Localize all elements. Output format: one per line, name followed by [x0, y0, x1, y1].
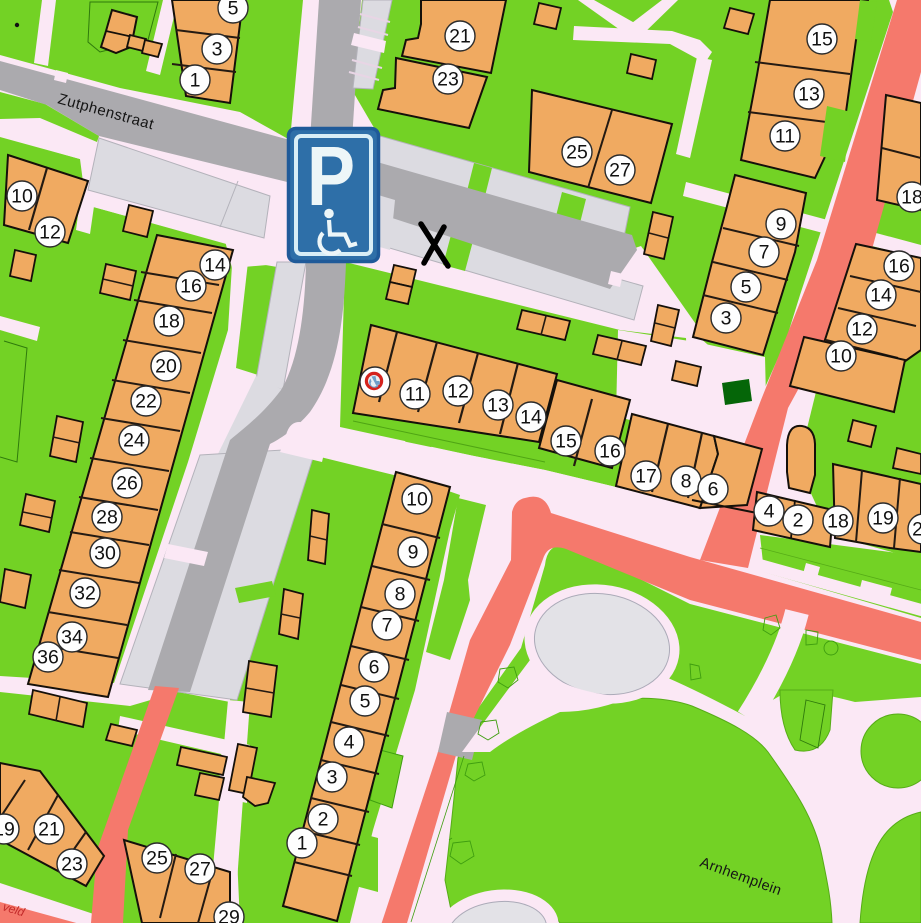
- svg-text:20: 20: [912, 519, 921, 541]
- svg-text:2: 2: [793, 510, 804, 532]
- svg-text:10: 10: [11, 186, 33, 208]
- svg-text:14: 14: [204, 255, 226, 277]
- svg-text:16: 16: [180, 276, 202, 298]
- svg-text:21: 21: [38, 819, 60, 841]
- svg-text:2: 2: [318, 809, 329, 831]
- svg-text:11: 11: [405, 384, 425, 406]
- svg-text:8: 8: [395, 584, 406, 606]
- svg-text:13: 13: [798, 84, 820, 106]
- svg-text:7: 7: [382, 615, 393, 637]
- svg-text:4: 4: [764, 501, 775, 523]
- svg-text:23: 23: [61, 854, 83, 876]
- svg-text:11: 11: [775, 126, 795, 148]
- svg-text:32: 32: [74, 583, 96, 605]
- svg-text:27: 27: [609, 160, 631, 182]
- svg-text:3: 3: [327, 767, 338, 789]
- svg-text:P: P: [307, 129, 355, 223]
- svg-text:5: 5: [741, 277, 752, 299]
- svg-text:12: 12: [39, 222, 61, 244]
- svg-text:19: 19: [0, 819, 15, 841]
- svg-text:15: 15: [555, 431, 577, 453]
- svg-text:12: 12: [851, 319, 873, 341]
- svg-text:13: 13: [487, 395, 509, 417]
- svg-text:18: 18: [158, 311, 180, 333]
- svg-text:6: 6: [708, 479, 719, 501]
- svg-text:7: 7: [759, 242, 770, 264]
- svg-text:17: 17: [635, 466, 657, 488]
- svg-text:23: 23: [437, 69, 459, 91]
- svg-text:21: 21: [449, 26, 471, 48]
- svg-text:14: 14: [520, 407, 542, 429]
- svg-text:24: 24: [123, 430, 145, 452]
- svg-text:1: 1: [190, 70, 201, 92]
- svg-text:5: 5: [360, 691, 371, 713]
- svg-text:34: 34: [61, 627, 83, 649]
- svg-text:12: 12: [447, 381, 469, 403]
- svg-text:16: 16: [888, 256, 910, 278]
- svg-text:20: 20: [155, 356, 177, 378]
- svg-text:27: 27: [189, 859, 211, 881]
- svg-text:14: 14: [870, 285, 892, 307]
- svg-text:6: 6: [369, 657, 380, 679]
- svg-text:22: 22: [135, 391, 157, 413]
- svg-text:3: 3: [212, 39, 223, 61]
- svg-text:29: 29: [218, 907, 240, 923]
- svg-text:28: 28: [96, 507, 118, 529]
- svg-text:18: 18: [901, 187, 921, 209]
- svg-text:25: 25: [146, 848, 168, 870]
- svg-text:16: 16: [599, 441, 621, 463]
- svg-text:36: 36: [37, 647, 59, 669]
- svg-text:18: 18: [827, 511, 849, 533]
- svg-text:9: 9: [776, 214, 787, 236]
- svg-text:25: 25: [566, 142, 588, 164]
- svg-text:3: 3: [721, 308, 732, 330]
- svg-text:5: 5: [228, 0, 239, 20]
- svg-text:1: 1: [297, 833, 308, 855]
- svg-text:9: 9: [408, 542, 419, 564]
- svg-text:4: 4: [344, 732, 355, 754]
- svg-text:30: 30: [94, 543, 116, 565]
- svg-text:8: 8: [681, 471, 692, 493]
- svg-text:10: 10: [406, 489, 428, 511]
- svg-text:15: 15: [811, 29, 833, 51]
- svg-text:26: 26: [116, 473, 138, 495]
- svg-text:10: 10: [830, 346, 852, 368]
- svg-text:19: 19: [872, 508, 894, 530]
